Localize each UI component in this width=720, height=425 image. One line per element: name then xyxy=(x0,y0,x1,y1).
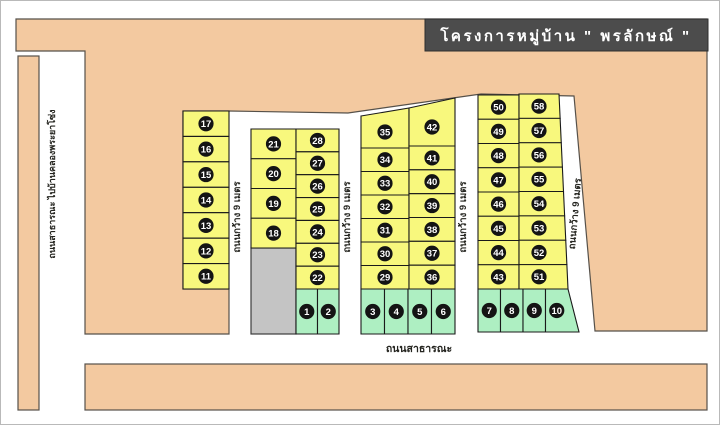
lot-number: 53 xyxy=(534,223,545,234)
lot-number: 27 xyxy=(312,159,323,170)
lot-number: 47 xyxy=(493,175,504,186)
lot-number: 28 xyxy=(312,136,323,147)
inner-road-label-4: ถนนกว้าง 9 เมตร xyxy=(566,177,584,250)
lot-number: 42 xyxy=(427,122,438,133)
lot-2: 2 xyxy=(318,289,340,334)
lot-26: 26 xyxy=(296,175,339,198)
lot-number: 35 xyxy=(380,127,391,138)
lot-number: 29 xyxy=(380,273,391,284)
reserved-plot-gray xyxy=(251,248,296,334)
lot-number: 36 xyxy=(427,272,438,283)
lot-number: 16 xyxy=(201,145,212,156)
lot-number: 58 xyxy=(534,102,545,113)
lot-number: 12 xyxy=(201,246,212,257)
lot-48: 48 xyxy=(478,144,519,168)
lot-5: 5 xyxy=(408,289,432,334)
lot-number: 34 xyxy=(380,155,391,166)
lot-number: 19 xyxy=(268,199,279,210)
lot-15: 15 xyxy=(183,162,229,187)
lot-27: 27 xyxy=(296,152,339,175)
lot-number: 50 xyxy=(493,103,504,114)
lot-57: 57 xyxy=(519,118,561,142)
lot-45: 45 xyxy=(478,216,519,240)
bottom-road-label: ถนนสาธารณะ xyxy=(386,343,452,355)
lot-58: 58 xyxy=(519,94,560,118)
lot-number: 10 xyxy=(551,306,562,317)
lot-number: 18 xyxy=(268,229,279,240)
lot-number: 3 xyxy=(370,307,375,318)
lot-17: 17 xyxy=(183,111,229,136)
lot-7: 7 xyxy=(478,289,501,332)
lot-25: 25 xyxy=(296,198,339,221)
lot-46: 46 xyxy=(478,192,519,216)
lot-number: 44 xyxy=(493,248,504,259)
lot-43: 43 xyxy=(478,265,519,289)
lot-number: 21 xyxy=(268,139,279,150)
lot-54: 54 xyxy=(519,192,565,216)
lot-47: 47 xyxy=(478,168,519,192)
lot-38: 38 xyxy=(409,218,455,242)
lot-number: 33 xyxy=(380,179,391,190)
lot-18: 18 xyxy=(251,218,296,248)
lot-35: 35 xyxy=(361,108,409,148)
lot-number: 48 xyxy=(493,151,504,162)
lot-10: 10 xyxy=(546,289,580,332)
lot-number: 46 xyxy=(493,200,504,211)
lot-number: 43 xyxy=(493,272,504,283)
village-plot-plan: 1716151413121121201918282726252423223534… xyxy=(0,0,720,425)
lot-53: 53 xyxy=(519,216,566,240)
lot-number: 7 xyxy=(487,306,492,317)
lot-33: 33 xyxy=(361,172,409,196)
lot-23: 23 xyxy=(296,243,339,266)
lot-number: 15 xyxy=(201,170,212,181)
lot-number: 2 xyxy=(326,307,331,318)
lot-number: 55 xyxy=(534,175,545,186)
lot-number: 20 xyxy=(268,169,279,180)
lot-41: 41 xyxy=(409,146,455,170)
lot-number: 26 xyxy=(312,182,323,193)
inner-road-label-3: ถนนกว้าง 9 เมตร xyxy=(457,181,469,253)
lot-49: 49 xyxy=(478,119,519,143)
lot-number: 57 xyxy=(534,126,545,137)
lot-number: 49 xyxy=(493,127,504,138)
lot-6: 6 xyxy=(432,289,456,334)
lot-30: 30 xyxy=(361,242,409,266)
lot-number: 14 xyxy=(201,195,212,206)
lot-50: 50 xyxy=(478,95,519,119)
lot-8: 8 xyxy=(501,289,524,332)
inner-road-label-2: ถนนกว้าง 9 เมตร xyxy=(341,181,353,253)
lot-16: 16 xyxy=(183,136,229,161)
lot-number: 13 xyxy=(201,221,212,232)
lot-55: 55 xyxy=(519,167,564,191)
inner-road-label-1: ถนนกว้าง 9 เมตร xyxy=(231,181,243,253)
lot-51: 51 xyxy=(519,265,568,289)
lot-40: 40 xyxy=(409,170,455,194)
left-road-band xyxy=(18,56,39,410)
lot-52: 52 xyxy=(519,240,567,264)
lot-28: 28 xyxy=(296,129,339,152)
lot-19: 19 xyxy=(251,189,296,219)
lot-number: 30 xyxy=(380,249,391,260)
lot-number: 45 xyxy=(493,224,504,235)
lot-11: 11 xyxy=(183,264,229,289)
lot-number: 54 xyxy=(534,199,545,210)
lot-34: 34 xyxy=(361,148,409,172)
lot-number: 31 xyxy=(380,226,391,237)
lot-number: 24 xyxy=(312,227,323,238)
lot-20: 20 xyxy=(251,159,296,189)
lot-number: 23 xyxy=(312,250,323,261)
lot-number: 9 xyxy=(532,306,537,317)
lot-22: 22 xyxy=(296,266,339,289)
lot-1: 1 xyxy=(296,289,318,334)
lot-37: 37 xyxy=(409,241,455,265)
lot-29: 29 xyxy=(361,266,409,290)
lot-number: 32 xyxy=(380,202,391,213)
lot-42: 42 xyxy=(409,98,455,146)
lot-number: 39 xyxy=(427,201,438,212)
lot-number: 8 xyxy=(509,306,514,317)
lot-9: 9 xyxy=(523,289,546,332)
lot-number: 5 xyxy=(417,307,423,318)
lot-13: 13 xyxy=(183,213,229,238)
lot-12: 12 xyxy=(183,238,229,263)
lot-21: 21 xyxy=(251,129,296,159)
site-plan-svg: 1716151413121121201918282726252423223534… xyxy=(1,1,720,425)
lot-36: 36 xyxy=(409,265,455,289)
lot-number: 52 xyxy=(534,248,545,259)
project-title: โครงการหมู่บ้าน " พรลักษณ์ " xyxy=(439,26,691,46)
lot-24: 24 xyxy=(296,220,339,243)
lot-4: 4 xyxy=(385,289,409,334)
lot-number: 37 xyxy=(427,249,438,260)
bottom-road-band xyxy=(85,364,707,410)
lot-14: 14 xyxy=(183,187,229,212)
lot-number: 17 xyxy=(201,119,212,130)
left-road-label: ถนนสาธารณะ ไปบ้านคลองพระยาโซ่ง xyxy=(46,109,57,258)
lot-number: 1 xyxy=(304,307,310,318)
lot-number: 51 xyxy=(534,272,545,283)
lot-number: 40 xyxy=(427,177,438,188)
lot-number: 41 xyxy=(427,153,438,164)
lot-3: 3 xyxy=(361,289,385,334)
lot-number: 22 xyxy=(312,273,323,284)
lot-number: 56 xyxy=(534,150,545,161)
lot-number: 38 xyxy=(427,225,438,236)
lot-44: 44 xyxy=(478,241,519,265)
lot-number: 6 xyxy=(441,307,446,318)
lot-39: 39 xyxy=(409,194,455,218)
lot-31: 31 xyxy=(361,219,409,243)
lot-number: 11 xyxy=(201,272,212,283)
lot-number: 4 xyxy=(394,307,400,318)
lot-32: 32 xyxy=(361,195,409,219)
lot-56: 56 xyxy=(519,143,562,167)
lot-number: 25 xyxy=(312,204,323,215)
